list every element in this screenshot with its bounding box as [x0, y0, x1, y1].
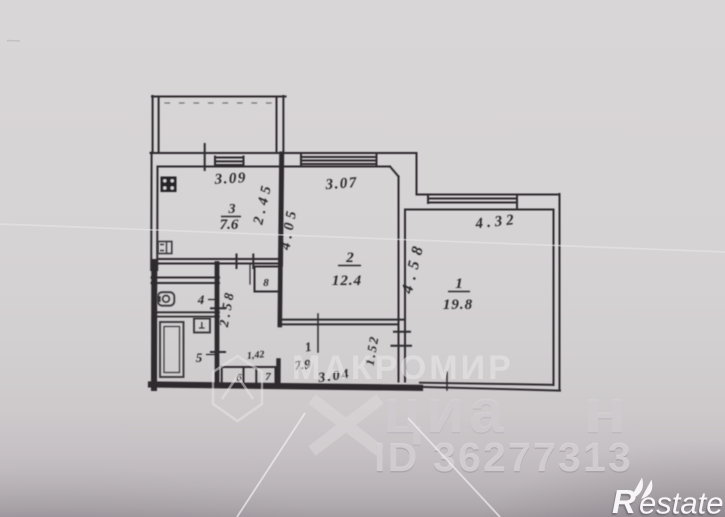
svg-text:R: R	[612, 483, 636, 517]
svg-text:7: 7	[265, 371, 271, 383]
svg-text:4.58: 4.58	[399, 239, 429, 296]
svg-text:1,42: 1,42	[246, 349, 265, 362]
svg-text:3.07: 3.07	[324, 175, 358, 193]
svg-text:4: 4	[197, 292, 205, 307]
svg-text:3: 3	[228, 202, 236, 217]
svg-text:7.6: 7.6	[220, 217, 239, 233]
svg-text:5: 5	[196, 350, 203, 365]
svg-text:2: 2	[345, 250, 354, 266]
svg-text:ID 36277313: ID 36277313	[374, 434, 633, 480]
svg-text:19.8: 19.8	[443, 297, 473, 313]
svg-text:12.4: 12.4	[332, 273, 362, 289]
svg-text:8: 8	[263, 277, 269, 289]
svg-text:estate: estate	[639, 486, 723, 517]
svg-text:1: 1	[455, 276, 463, 292]
svg-text:3.09: 3.09	[213, 170, 247, 188]
svg-text:4.32: 4.32	[474, 212, 519, 232]
svg-text:2.45: 2.45	[250, 180, 276, 227]
